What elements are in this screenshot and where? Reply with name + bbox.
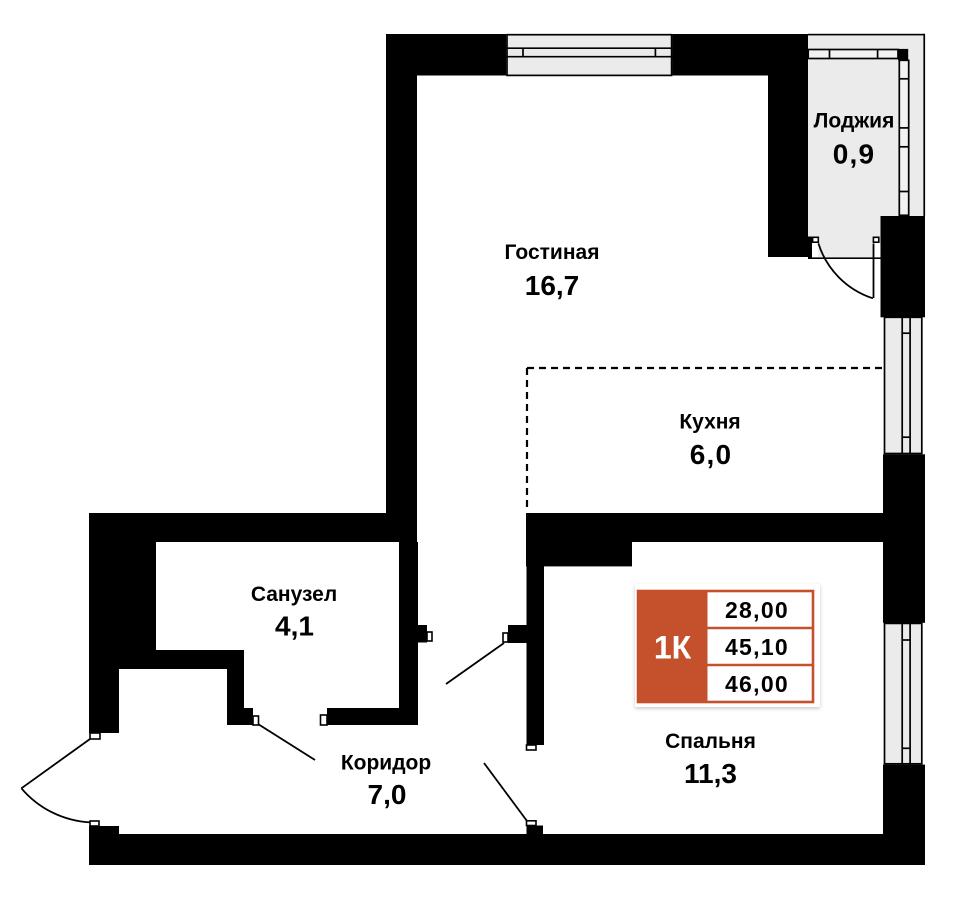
svg-text:Санузел: Санузел — [251, 583, 337, 606]
svg-text:Спальня: Спальня — [665, 730, 756, 753]
svg-text:6,0: 6,0 — [690, 439, 733, 470]
svg-text:Коридор: Коридор — [341, 752, 431, 775]
svg-text:4,1: 4,1 — [275, 611, 314, 642]
svg-text:45,10: 45,10 — [725, 634, 789, 660]
svg-text:Кухня: Кухня — [679, 411, 740, 434]
svg-text:7,0: 7,0 — [368, 779, 407, 810]
svg-text:1К: 1К — [654, 630, 692, 666]
svg-text:0,9: 0,9 — [833, 139, 876, 170]
svg-text:16,7: 16,7 — [525, 270, 580, 301]
svg-text:Лоджия: Лоджия — [814, 110, 895, 133]
svg-text:46,00: 46,00 — [725, 671, 789, 697]
svg-text:Гостиная: Гостиная — [505, 241, 600, 264]
svg-text:28,00: 28,00 — [725, 597, 789, 623]
svg-text:11,3: 11,3 — [684, 758, 737, 789]
